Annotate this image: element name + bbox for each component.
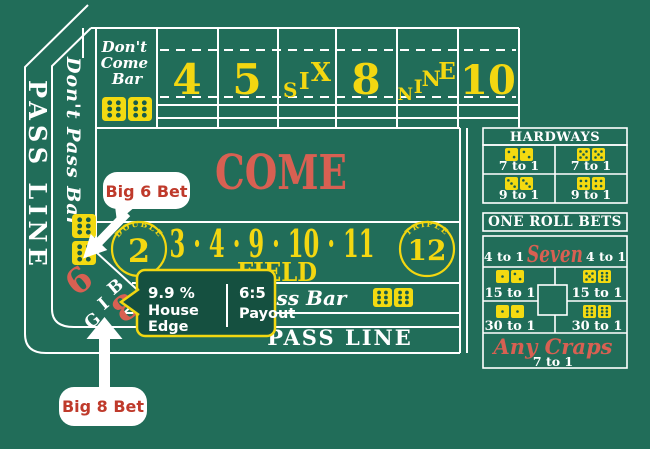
tooltip-payout-value: 6:5 [239,284,266,302]
six-letter-i: I [299,68,310,95]
point-box-4: 4 [172,55,201,104]
pass-line-bottom-label: PASS LINE [267,325,413,350]
one-roll-twelve-dice [583,305,611,318]
seven-right-odds: 4 to 1 [586,249,626,264]
big-8-callout: Big 8 Bet [59,317,147,426]
one-roll-two-dice [496,305,524,318]
one-roll-three-odds: 15 to 1 [485,286,536,301]
one-roll-two-odds: 30 to 1 [485,319,536,334]
point-box-nine: N I N E [397,58,455,105]
point-box-5: 5 [232,55,261,104]
any-craps-odds: 7 to 1 [533,354,573,369]
hardways-hard4-odds: 7 to 1 [499,158,539,173]
one-roll-twelve-odds: 30 to 1 [572,319,623,334]
point-box-six: S I X [283,58,332,102]
double-2-number: 2 [128,232,150,270]
dont-come-bar-label: Don't Come Bar [101,38,154,88]
big-6-callout-text: Big 6 Bet [105,182,187,201]
right-double-line [460,128,467,353]
seven-label: Seven [527,241,583,268]
craps-table-diagram: PASS LINE Don't Pass Bar Don't Come Bar … [0,0,650,449]
hardways-hard6-odds: 9 to 1 [499,187,539,202]
dont-pass-bar-left-label: Don't Pass Bar [62,56,84,229]
stats-tooltip: 9.9 % House Edge 6:5 Payout [121,270,295,336]
come-label: COME [215,145,347,201]
nine-letter-n1: N [397,85,413,105]
one-roll-center-square [538,285,567,315]
triple-12-number: 12 [408,234,447,267]
hardways-title: HARDWAYS [510,130,600,145]
one-roll-title: ONE ROLL BETS [488,214,622,230]
hardways-hard8-odds: 9 to 1 [571,187,611,202]
six-letter-x: X [311,58,332,88]
hardways-hard10-odds: 7 to 1 [571,158,611,173]
big-8-callout-text: Big 8 Bet [62,397,144,416]
tooltip-payout-label: Payout [239,306,295,322]
one-roll-eleven-dice [583,270,611,283]
one-roll-eleven-odds: 15 to 1 [572,286,623,301]
tooltip-house-edge-label-2: Edge [148,319,189,335]
one-roll-three-dice [496,270,524,283]
six-letter-s: S [283,78,297,102]
tooltip-house-edge-value: 9.9 % [148,284,195,302]
dont-come-line3: Bar [111,70,143,88]
big-6-number: 6 [58,258,101,304]
seven-left-odds: 4 to 1 [484,249,524,264]
point-box-10: 10 [460,57,516,104]
dont-come-bar-dice [102,97,152,121]
pass-line-left-label: PASS LINE [23,80,52,271]
nine-letter-e: E [438,58,456,85]
one-roll-bets-panel: ONE ROLL BETS 4 to 1 Seven 4 to 1 15 to … [483,213,627,369]
point-box-8: 8 [351,55,380,104]
craps-table-svg: PASS LINE Don't Pass Bar Don't Come Bar … [0,0,650,449]
hardways-panel: HARDWAYS 7 to 1 7 to 1 9 to 1 9 to 1 [483,128,627,203]
dont-pass-bottom-dice [373,288,413,307]
box-divider-ticks [218,118,519,128]
tooltip-house-edge-label-1: House [148,303,199,319]
